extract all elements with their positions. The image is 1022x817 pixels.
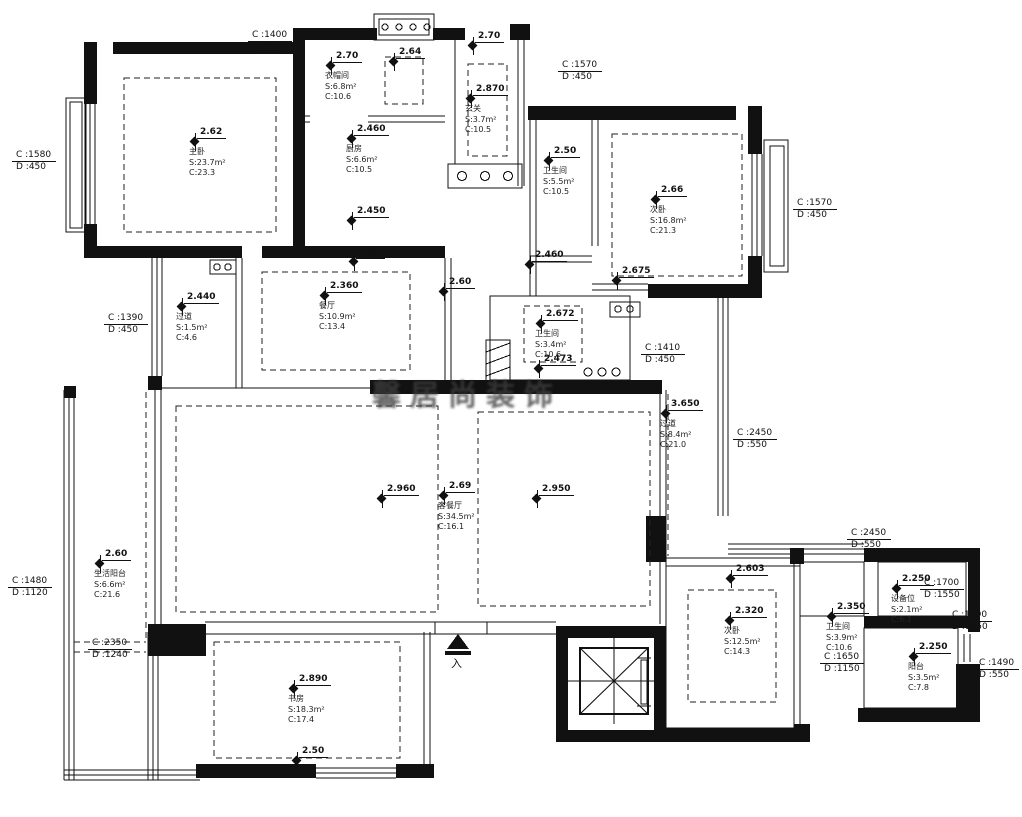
window-size-tag: C :1650 D :1150: [820, 652, 865, 674]
room-info: 过道S:8.4m²C:21.0: [660, 419, 692, 451]
window-width-label: C :1480: [8, 576, 52, 588]
elevation-value: 2.450: [354, 206, 389, 218]
window-width-label: C :2450: [847, 528, 891, 540]
elevation-marker-icon: [297, 752, 298, 770]
elevation-marker-icon: [394, 53, 395, 71]
elevation-value: 2.890: [296, 674, 331, 686]
elevation-value: 2.70: [475, 31, 504, 43]
window-size-tag: C :1580 D :450: [12, 150, 56, 172]
room-info: 阳台S:3.5m²C:7.8: [908, 662, 940, 694]
window-size-tag: C :1480 D :1120: [8, 576, 53, 598]
window-size-tag: C :1700 D :1550: [920, 578, 965, 600]
window-size-tag: C :2350 D :1240: [88, 638, 133, 660]
room-info: 过道S:1.5m²C:4.6: [176, 312, 208, 344]
elevation-value: 2.460: [532, 250, 567, 262]
entry-label: 入: [451, 655, 462, 671]
window-width-label: C :1700: [920, 578, 964, 590]
window-sill-label: D :910: [248, 42, 292, 52]
room-info: 衣帽间S:6.8m²C:10.6: [325, 71, 357, 103]
elevation-marker-icon: [444, 283, 445, 301]
elevation-value: 2.473: [541, 354, 576, 366]
elevation-value: 2.440: [184, 292, 219, 304]
elevation-marker-icon: [473, 37, 474, 55]
window-width-label: C :2350: [88, 638, 132, 650]
room-info: 次卧S:16.8m²C:21.3: [650, 205, 687, 237]
room-info: 卫生间S:3.9m²C:10.6: [826, 622, 858, 654]
window-size-tag: C :1410 D :450: [641, 343, 685, 365]
elevation-value: 2.66: [658, 185, 687, 197]
window-sill-label: D :1150: [820, 664, 865, 674]
elevation-value: 2.870: [473, 84, 508, 96]
elevation-value: 2.64: [396, 47, 425, 59]
window-sill-label: D :550: [733, 440, 777, 450]
window-width-label: C :1650: [820, 652, 864, 664]
elevation-value: 2.69: [446, 481, 475, 493]
elevation-marker-icon: [731, 570, 732, 588]
window-size-tag: C :2450 D :550: [733, 428, 777, 450]
elevation-marker-icon: [530, 256, 531, 274]
elevation-value: 2.65: [356, 247, 385, 259]
entry-arrow-icon: [445, 634, 471, 655]
elevation-value: 2.50: [551, 146, 580, 158]
window-width-label: C :1490: [975, 658, 1019, 670]
window-size-tag: C :1570 D :450: [558, 60, 602, 82]
elevation-marker-icon: [382, 490, 383, 508]
window-sill-label: D :450: [641, 355, 685, 365]
elevation-value: 2.350: [834, 602, 869, 614]
room-info: 客餐厅S:34.5m²C:16.1: [438, 501, 475, 533]
elevation-value: 2.460: [354, 124, 389, 136]
window-sill-label: D :450: [12, 162, 56, 172]
room-info: 设备位S:2.1m²C:6.1: [891, 594, 923, 626]
elevation-marker-icon: [617, 272, 618, 290]
room-info: 卫生间S:5.5m²C:10.5: [543, 166, 575, 198]
elevation-value: 2.70: [333, 51, 362, 63]
window-width-label: C :2450: [733, 428, 777, 440]
floorplan: 馨居尚装饰 入 2.62 主卧S:23.7m²C:23.3 2.70 衣帽间S:…: [0, 0, 1022, 817]
window-sill-label: D :1120: [8, 588, 53, 598]
elevation-value: 3.650: [668, 399, 703, 411]
elevation-value: 2.950: [539, 484, 574, 496]
window-size-tag: C :1400 D :910: [248, 30, 292, 52]
elevation-value: 2.675: [619, 266, 654, 278]
elevation-value: 2.960: [384, 484, 419, 496]
window-width-label: C :1570: [793, 198, 837, 210]
elevation-value: 2.250: [916, 642, 951, 654]
window-sill-label: D :550: [975, 670, 1019, 680]
elevation-value: 2.672: [543, 309, 578, 321]
elevation-value: 2.60: [102, 549, 131, 561]
window-sill-label: D :1550: [948, 622, 993, 632]
watermark: 馨居尚装饰: [372, 372, 562, 414]
elevation-marker-icon: [537, 490, 538, 508]
elevation-marker-icon: [354, 253, 355, 271]
window-width-label: C :1410: [641, 343, 685, 355]
room-info: 主卧S:23.7m²C:23.3: [189, 147, 226, 179]
room-info: 玄关S:3.7m²C:10.5: [465, 104, 497, 136]
window-sill-label: D :1240: [88, 650, 133, 660]
elevation-marker-icon: [352, 212, 353, 230]
window-sill-label: D :450: [104, 325, 148, 335]
window-width-label: C :1400: [248, 30, 292, 42]
window-size-tag: C :1490 D :1550: [948, 610, 993, 632]
window-width-label: C :1570: [558, 60, 602, 72]
room-info: 厨房S:6.6m²C:10.5: [346, 144, 378, 176]
room-info: 生活阳台S:6.6m²C:21.6: [94, 569, 126, 601]
room-info: 书房S:18.3m²C:17.4: [288, 694, 325, 726]
room-info: 餐厅S:10.9m²C:13.4: [319, 301, 356, 333]
window-sill-label: D :550: [847, 540, 891, 550]
elevation-value: 2.60: [446, 277, 475, 289]
window-size-tag: C :2450 D :550: [847, 528, 891, 550]
window-size-tag: C :1390 D :450: [104, 313, 148, 335]
window-sill-label: D :1550: [920, 590, 965, 600]
room-info: 次卧S:12.5m²C:14.3: [724, 626, 761, 658]
window-sill-label: D :450: [793, 210, 837, 220]
window-width-label: C :1390: [104, 313, 148, 325]
window-size-tag: C :1570 D :450: [793, 198, 837, 220]
elevation-value: 2.62: [197, 127, 226, 139]
elevation-value: 2.50: [299, 746, 328, 758]
elevation-value: 2.360: [327, 281, 362, 293]
elevation-value: 2.320: [732, 606, 767, 618]
elevation-value: 2.603: [733, 564, 768, 576]
window-size-tag: C :1490 D :550: [975, 658, 1019, 680]
window-sill-label: D :450: [558, 72, 602, 82]
window-width-label: C :1490: [948, 610, 992, 622]
window-width-label: C :1580: [12, 150, 56, 162]
